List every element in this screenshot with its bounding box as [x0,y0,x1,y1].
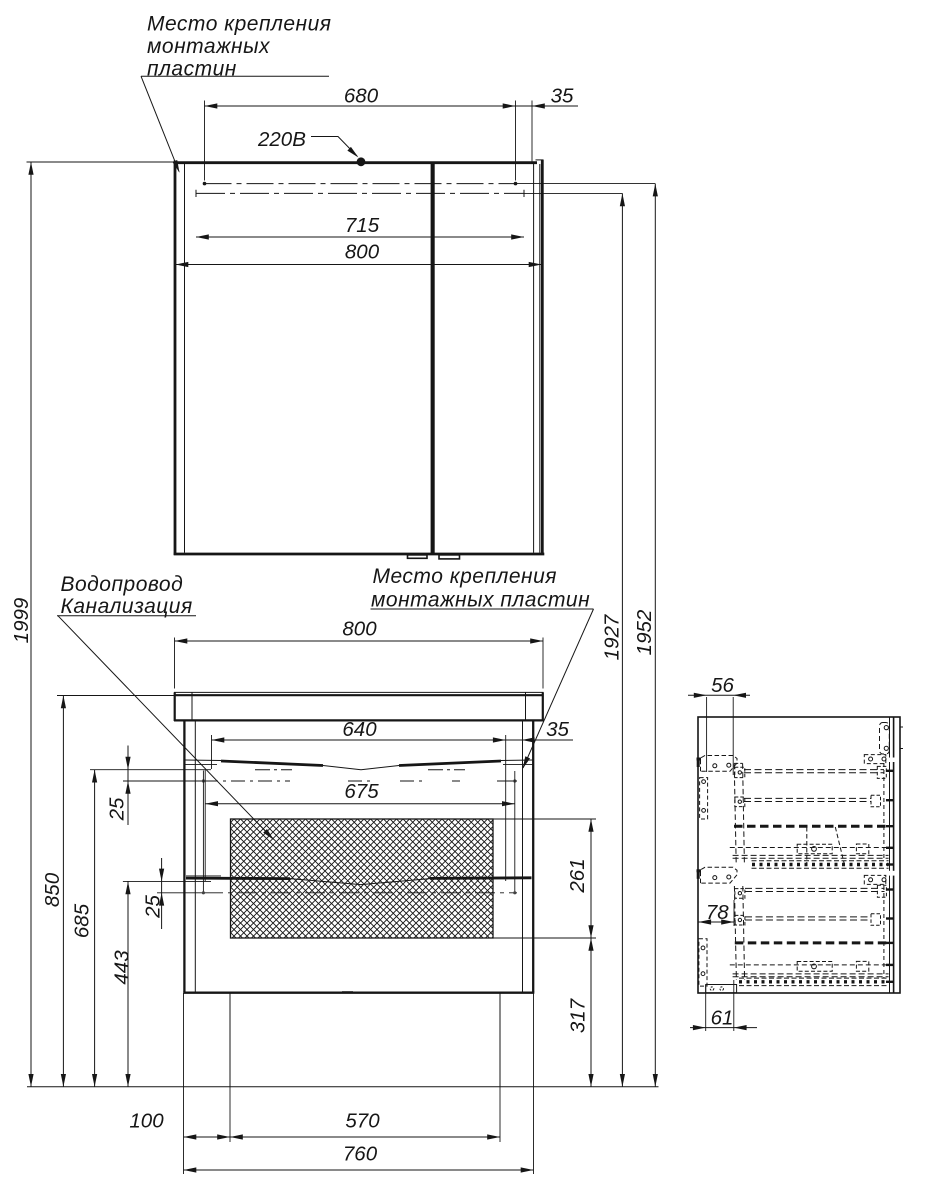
svg-text:261: 261 [566,858,589,893]
svg-text:Водопровод: Водопровод [61,573,184,596]
svg-text:монтажных: монтажных [147,35,271,58]
svg-text:56: 56 [711,674,734,697]
svg-text:850: 850 [41,872,64,907]
svg-text:78: 78 [706,901,729,924]
svg-text:220В: 220В [257,128,306,151]
svg-text:Канализация: Канализация [61,595,193,618]
svg-text:100: 100 [129,1110,164,1133]
svg-text:1999: 1999 [10,598,33,644]
svg-text:25: 25 [142,895,165,919]
svg-text:монтажных пластин: монтажных пластин [371,589,590,612]
svg-text:640: 640 [342,718,377,741]
svg-text:1952: 1952 [633,609,656,655]
svg-text:25: 25 [105,797,128,821]
svg-text:685: 685 [71,903,94,938]
svg-text:Место крепления: Место крепления [373,565,558,588]
svg-text:715: 715 [345,214,380,237]
svg-text:760: 760 [343,1143,378,1166]
svg-text:35: 35 [551,85,574,108]
svg-text:443: 443 [111,950,134,985]
svg-text:800: 800 [342,618,377,641]
svg-text:317: 317 [567,997,590,1033]
svg-text:675: 675 [344,780,379,803]
svg-text:61: 61 [711,1007,734,1030]
svg-text:570: 570 [345,1110,380,1133]
svg-text:680: 680 [344,85,379,108]
svg-text:800: 800 [345,241,380,264]
svg-text:35: 35 [546,718,569,741]
svg-text:Место крепления: Место крепления [147,13,332,36]
svg-text:пластин: пластин [147,58,237,81]
svg-text:1927: 1927 [601,613,624,660]
